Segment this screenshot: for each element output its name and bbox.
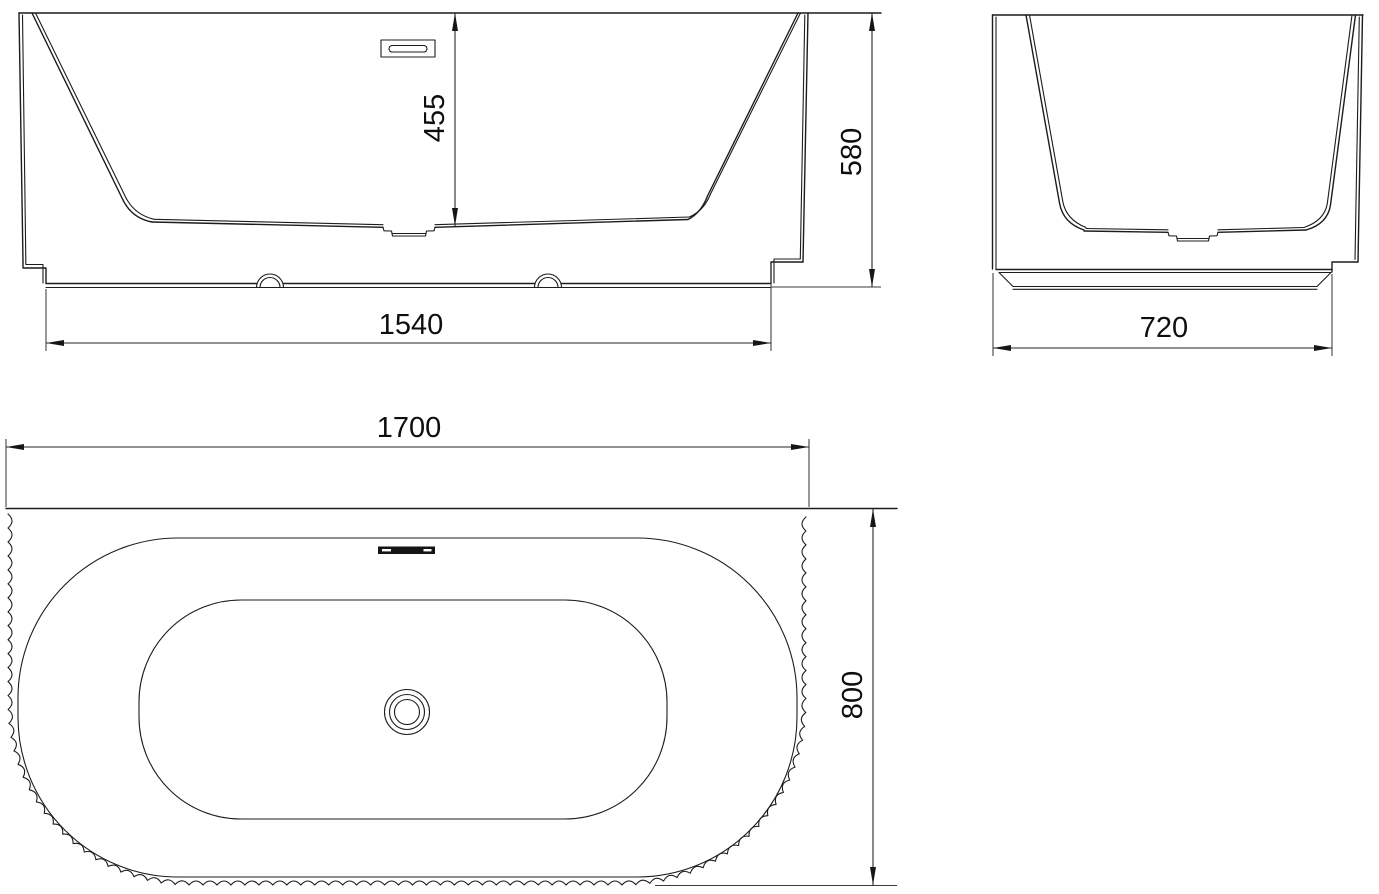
side-plinth-body xyxy=(999,273,1331,290)
overflow-icon-plan xyxy=(378,547,435,555)
dim-label-1540: 1540 xyxy=(379,309,444,341)
front-right-inner-wall xyxy=(688,13,798,220)
dim-label-720: 720 xyxy=(1140,312,1188,344)
front-elevation-view: 455 580 1540 xyxy=(19,13,881,351)
dim-overall-width: 800 xyxy=(655,509,897,886)
front-plinth-notch-left xyxy=(257,274,284,288)
dim-base-length: 1540 xyxy=(46,264,771,351)
side-basin-floor-2 xyxy=(1086,228,1304,230)
dim-base-width: 720 xyxy=(993,273,1332,356)
dim-label-580: 580 xyxy=(836,128,868,176)
side-elevation-view: 720 xyxy=(993,15,1364,356)
dim-inner-depth: 455 xyxy=(419,13,458,226)
front-left-inner-wall-2 xyxy=(36,13,155,219)
side-right-inner-wall-2 xyxy=(1304,15,1352,228)
plan-basin-opening xyxy=(139,600,667,819)
dim-overall-height: 580 xyxy=(836,13,875,287)
bathtub-drawing: 455 580 1540 xyxy=(0,0,1379,894)
front-right-inner-wall-2 xyxy=(690,13,801,217)
plan-inner-rim xyxy=(18,538,797,877)
side-drain-recess xyxy=(1168,232,1218,241)
dim-label-800: 800 xyxy=(837,671,869,719)
dim-label-1700: 1700 xyxy=(377,412,442,444)
drain-icon xyxy=(385,690,430,735)
dim-overall-length: 1700 xyxy=(6,412,809,507)
front-left-outer-wall xyxy=(19,13,23,262)
dim-label-455: 455 xyxy=(419,94,451,142)
side-right-step xyxy=(1332,262,1358,272)
front-right-step xyxy=(771,262,803,283)
front-left-inner-wall xyxy=(32,13,152,222)
plan-view: 1700 800 xyxy=(6,412,897,886)
front-plinth-notch-right xyxy=(535,274,562,288)
front-left-step-inner xyxy=(26,259,43,283)
technical-drawing-canvas: 455 580 1540 xyxy=(0,0,1379,894)
front-drain-recess xyxy=(383,227,435,236)
side-basin-floor xyxy=(1084,230,1306,232)
overflow-icon-front xyxy=(381,40,435,57)
